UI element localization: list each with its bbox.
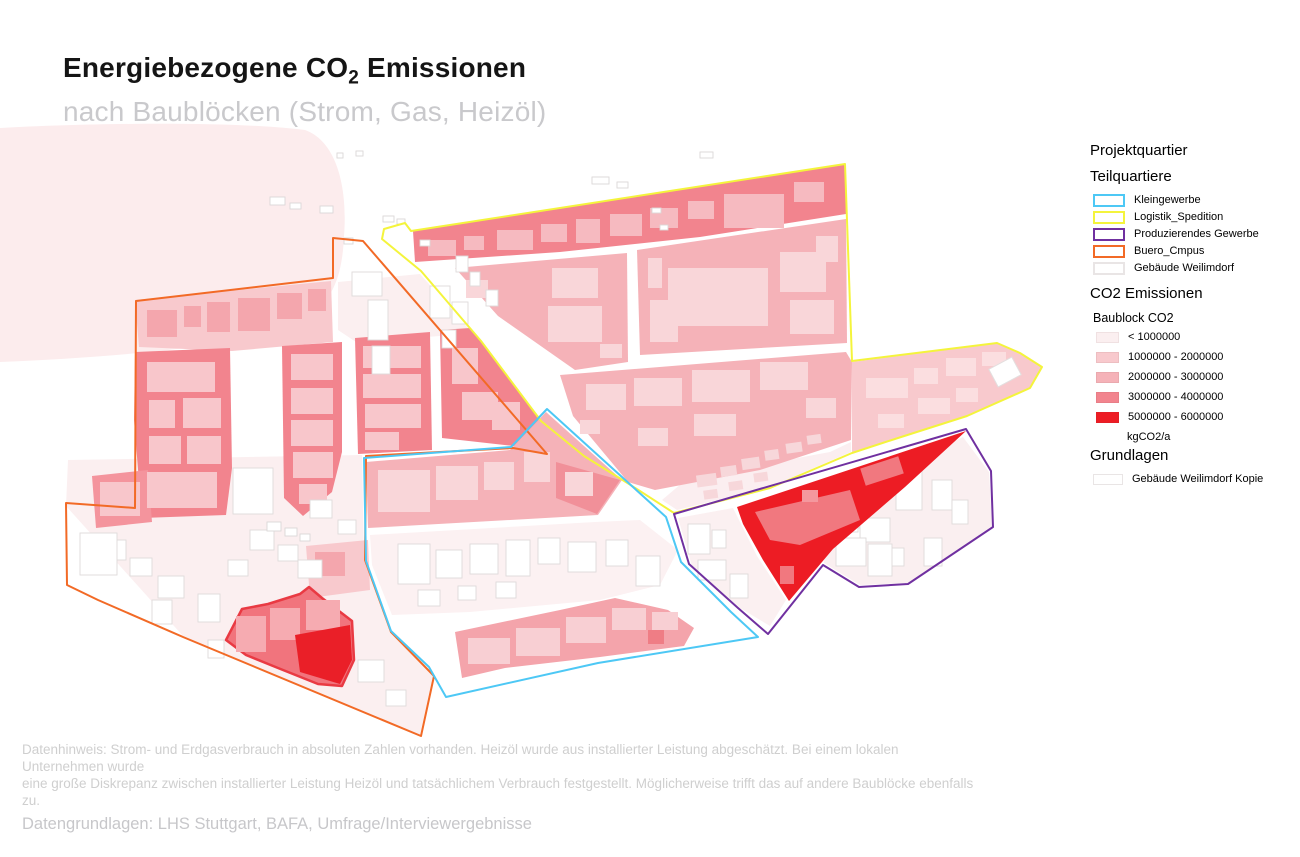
legend-item-co2-class: 1000000 - 2000000 (1093, 351, 1290, 363)
legend-unit: kgCO2/a (1127, 431, 1290, 443)
teilquartier-color-swatch (1093, 194, 1125, 207)
teilquartier-color-swatch (1093, 262, 1125, 275)
legend-item-teilquartier: Logistik_Spedition (1093, 211, 1290, 223)
legend-item-teilquartier: Kleingewerbe (1093, 194, 1290, 206)
co2-class-color-swatch (1096, 392, 1119, 403)
legend-teilquartiere-items: Kleingewerbe Logistik_Spedition Produzie… (1090, 194, 1290, 274)
legend-item-co2-class: 3000000 - 4000000 (1093, 391, 1290, 403)
co2-class-color-swatch (1096, 372, 1119, 383)
teilquartier-label: Logistik_Spedition (1134, 211, 1223, 223)
co2-class-color-swatch (1096, 332, 1119, 343)
teilquartier-label: Gebäude Weilimdorf (1134, 262, 1234, 274)
grundlage-color-swatch (1093, 474, 1123, 485)
co2-class-label: 1000000 - 2000000 (1128, 351, 1223, 363)
map-header: Energiebezogene CO2 Emissionen nach Baub… (63, 52, 546, 128)
legend-grundlagen-items: Gebäude Weilimdorf Kopie (1090, 473, 1290, 485)
legend-item-teilquartier: Gebäude Weilimdorf (1093, 262, 1290, 274)
legend-co2-classes: < 1000000 1000000 - 2000000 2000000 - 30… (1090, 331, 1290, 423)
legend-item-co2-class: < 1000000 (1093, 331, 1290, 343)
data-note-line1: Datenhinweis: Strom- und Erdgasverbrauch… (22, 741, 982, 775)
legend-item-teilquartier: Produzierendes Gewerbe (1093, 228, 1290, 240)
grundlage-label: Gebäude Weilimdorf Kopie (1132, 473, 1263, 485)
data-note-line2: eine große Diskrepanz zwischen installie… (22, 775, 982, 809)
legend-group-co2: CO2 Emissionen (1090, 285, 1290, 302)
map-footer: Datenhinweis: Strom- und Erdgasverbrauch… (22, 741, 982, 834)
legend-item-co2-class: 5000000 - 6000000 (1093, 411, 1290, 423)
legend-item-grundlage: Gebäude Weilimdorf Kopie (1093, 473, 1290, 485)
teilquartier-label: Buero_Cmpus (1134, 245, 1204, 257)
co2-class-color-swatch (1096, 412, 1119, 423)
data-sources: Datengrundlagen: LHS Stuttgart, BAFA, Um… (22, 815, 982, 834)
teilquartier-color-swatch (1093, 211, 1125, 224)
teilquartier-label: Produzierendes Gewerbe (1134, 228, 1259, 240)
legend-group-projektquartier: Projektquartier (1090, 142, 1290, 159)
co2-class-label: 3000000 - 4000000 (1128, 391, 1223, 403)
legend-group-grundlagen: Grundlagen (1090, 447, 1290, 464)
page-subtitle: nach Baublöcken (Strom, Gas, Heizöl) (63, 96, 546, 128)
teilquartier-label: Kleingewerbe (1134, 194, 1201, 206)
legend-group-teilquartiere: Teilquartiere (1090, 168, 1290, 185)
co2-class-color-swatch (1096, 352, 1119, 363)
teilquartier-color-swatch (1093, 228, 1125, 241)
co2-class-label: < 1000000 (1128, 331, 1180, 343)
page-title: Energiebezogene CO2 Emissionen (63, 52, 546, 90)
legend-item-teilquartier: Buero_Cmpus (1093, 245, 1290, 257)
co2-class-label: 2000000 - 3000000 (1128, 371, 1223, 383)
teilquartier-color-swatch (1093, 245, 1125, 258)
co2-class-label: 5000000 - 6000000 (1128, 411, 1223, 423)
map-layout-page: Energiebezogene CO2 Emissionen nach Baub… (0, 0, 1300, 857)
legend-item-co2-class: 2000000 - 3000000 (1093, 371, 1290, 383)
legend-layer-baublock-co2: Baublock CO2 (1093, 311, 1290, 325)
map-legend: Projektquartier Teilquartiere Kleingewer… (1090, 142, 1290, 490)
